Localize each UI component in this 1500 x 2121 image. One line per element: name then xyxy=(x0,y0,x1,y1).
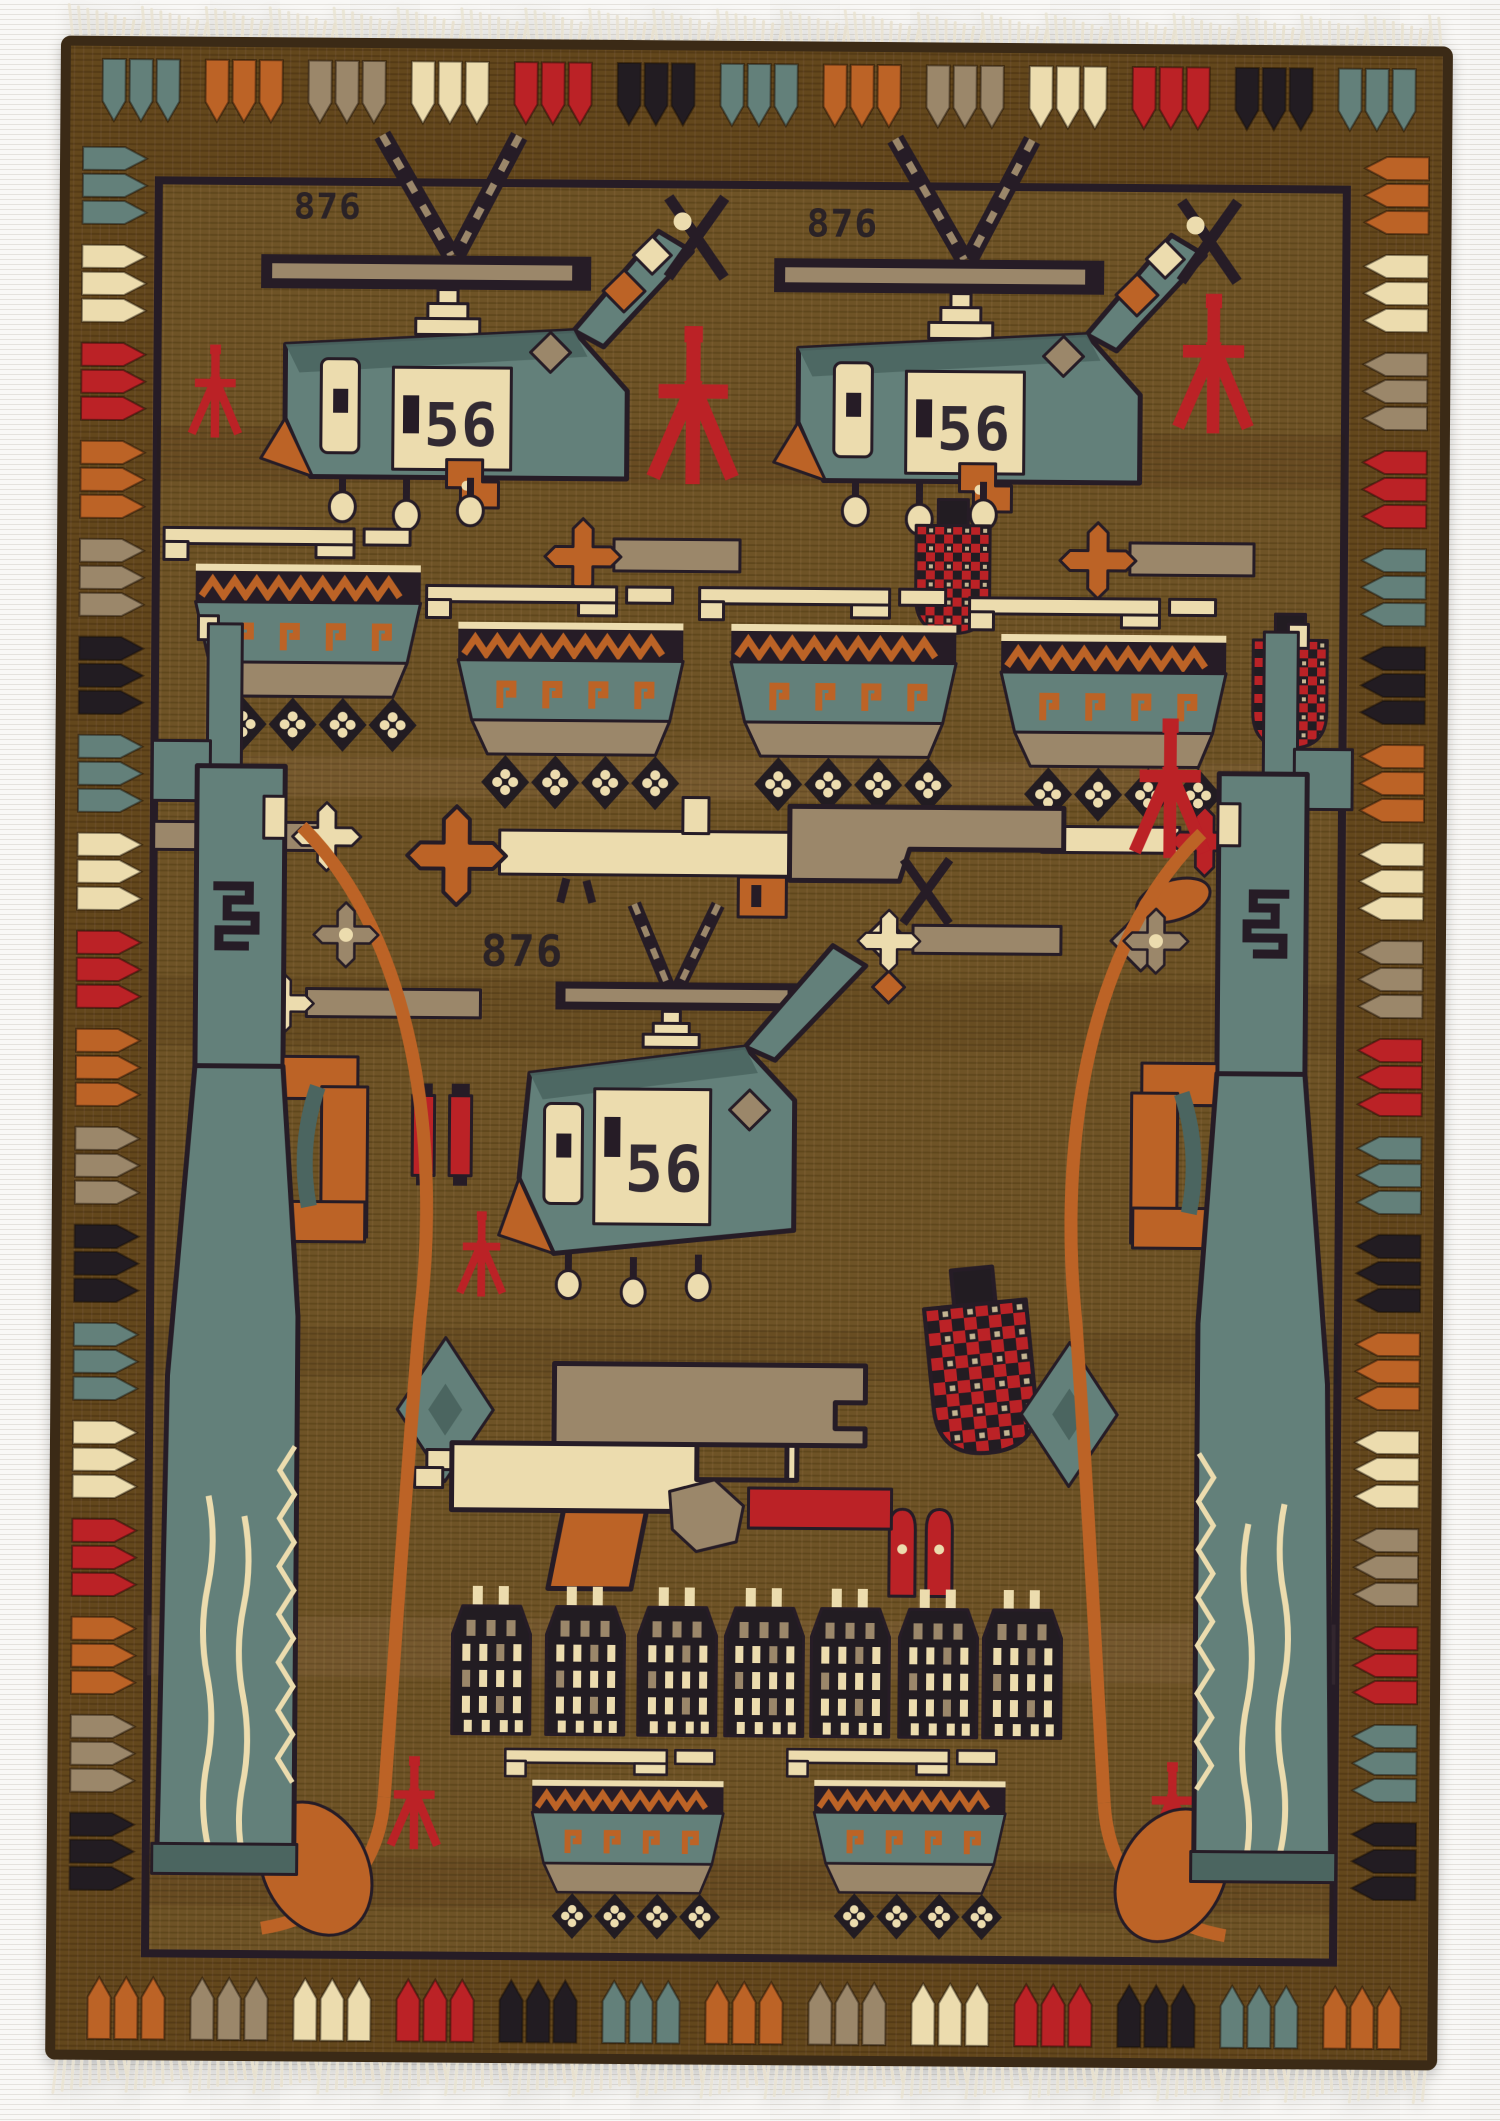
red-bottle-2 xyxy=(926,1509,953,1596)
serial-text-2: 876 xyxy=(806,201,878,246)
photo-background: 56 xyxy=(0,0,1500,2121)
magazine xyxy=(738,877,786,917)
war-rug-photo: 56 xyxy=(0,0,1500,2121)
serial-text-1: 876 xyxy=(294,186,362,228)
serial-text-3: 876 xyxy=(481,926,564,978)
red-bar xyxy=(748,1488,891,1529)
slide xyxy=(554,1363,866,1445)
war-rug: 876 876 xyxy=(50,5,1448,2104)
barrel xyxy=(499,830,791,876)
helicopter-number: 56 xyxy=(624,1133,704,1208)
grip xyxy=(548,1510,647,1589)
